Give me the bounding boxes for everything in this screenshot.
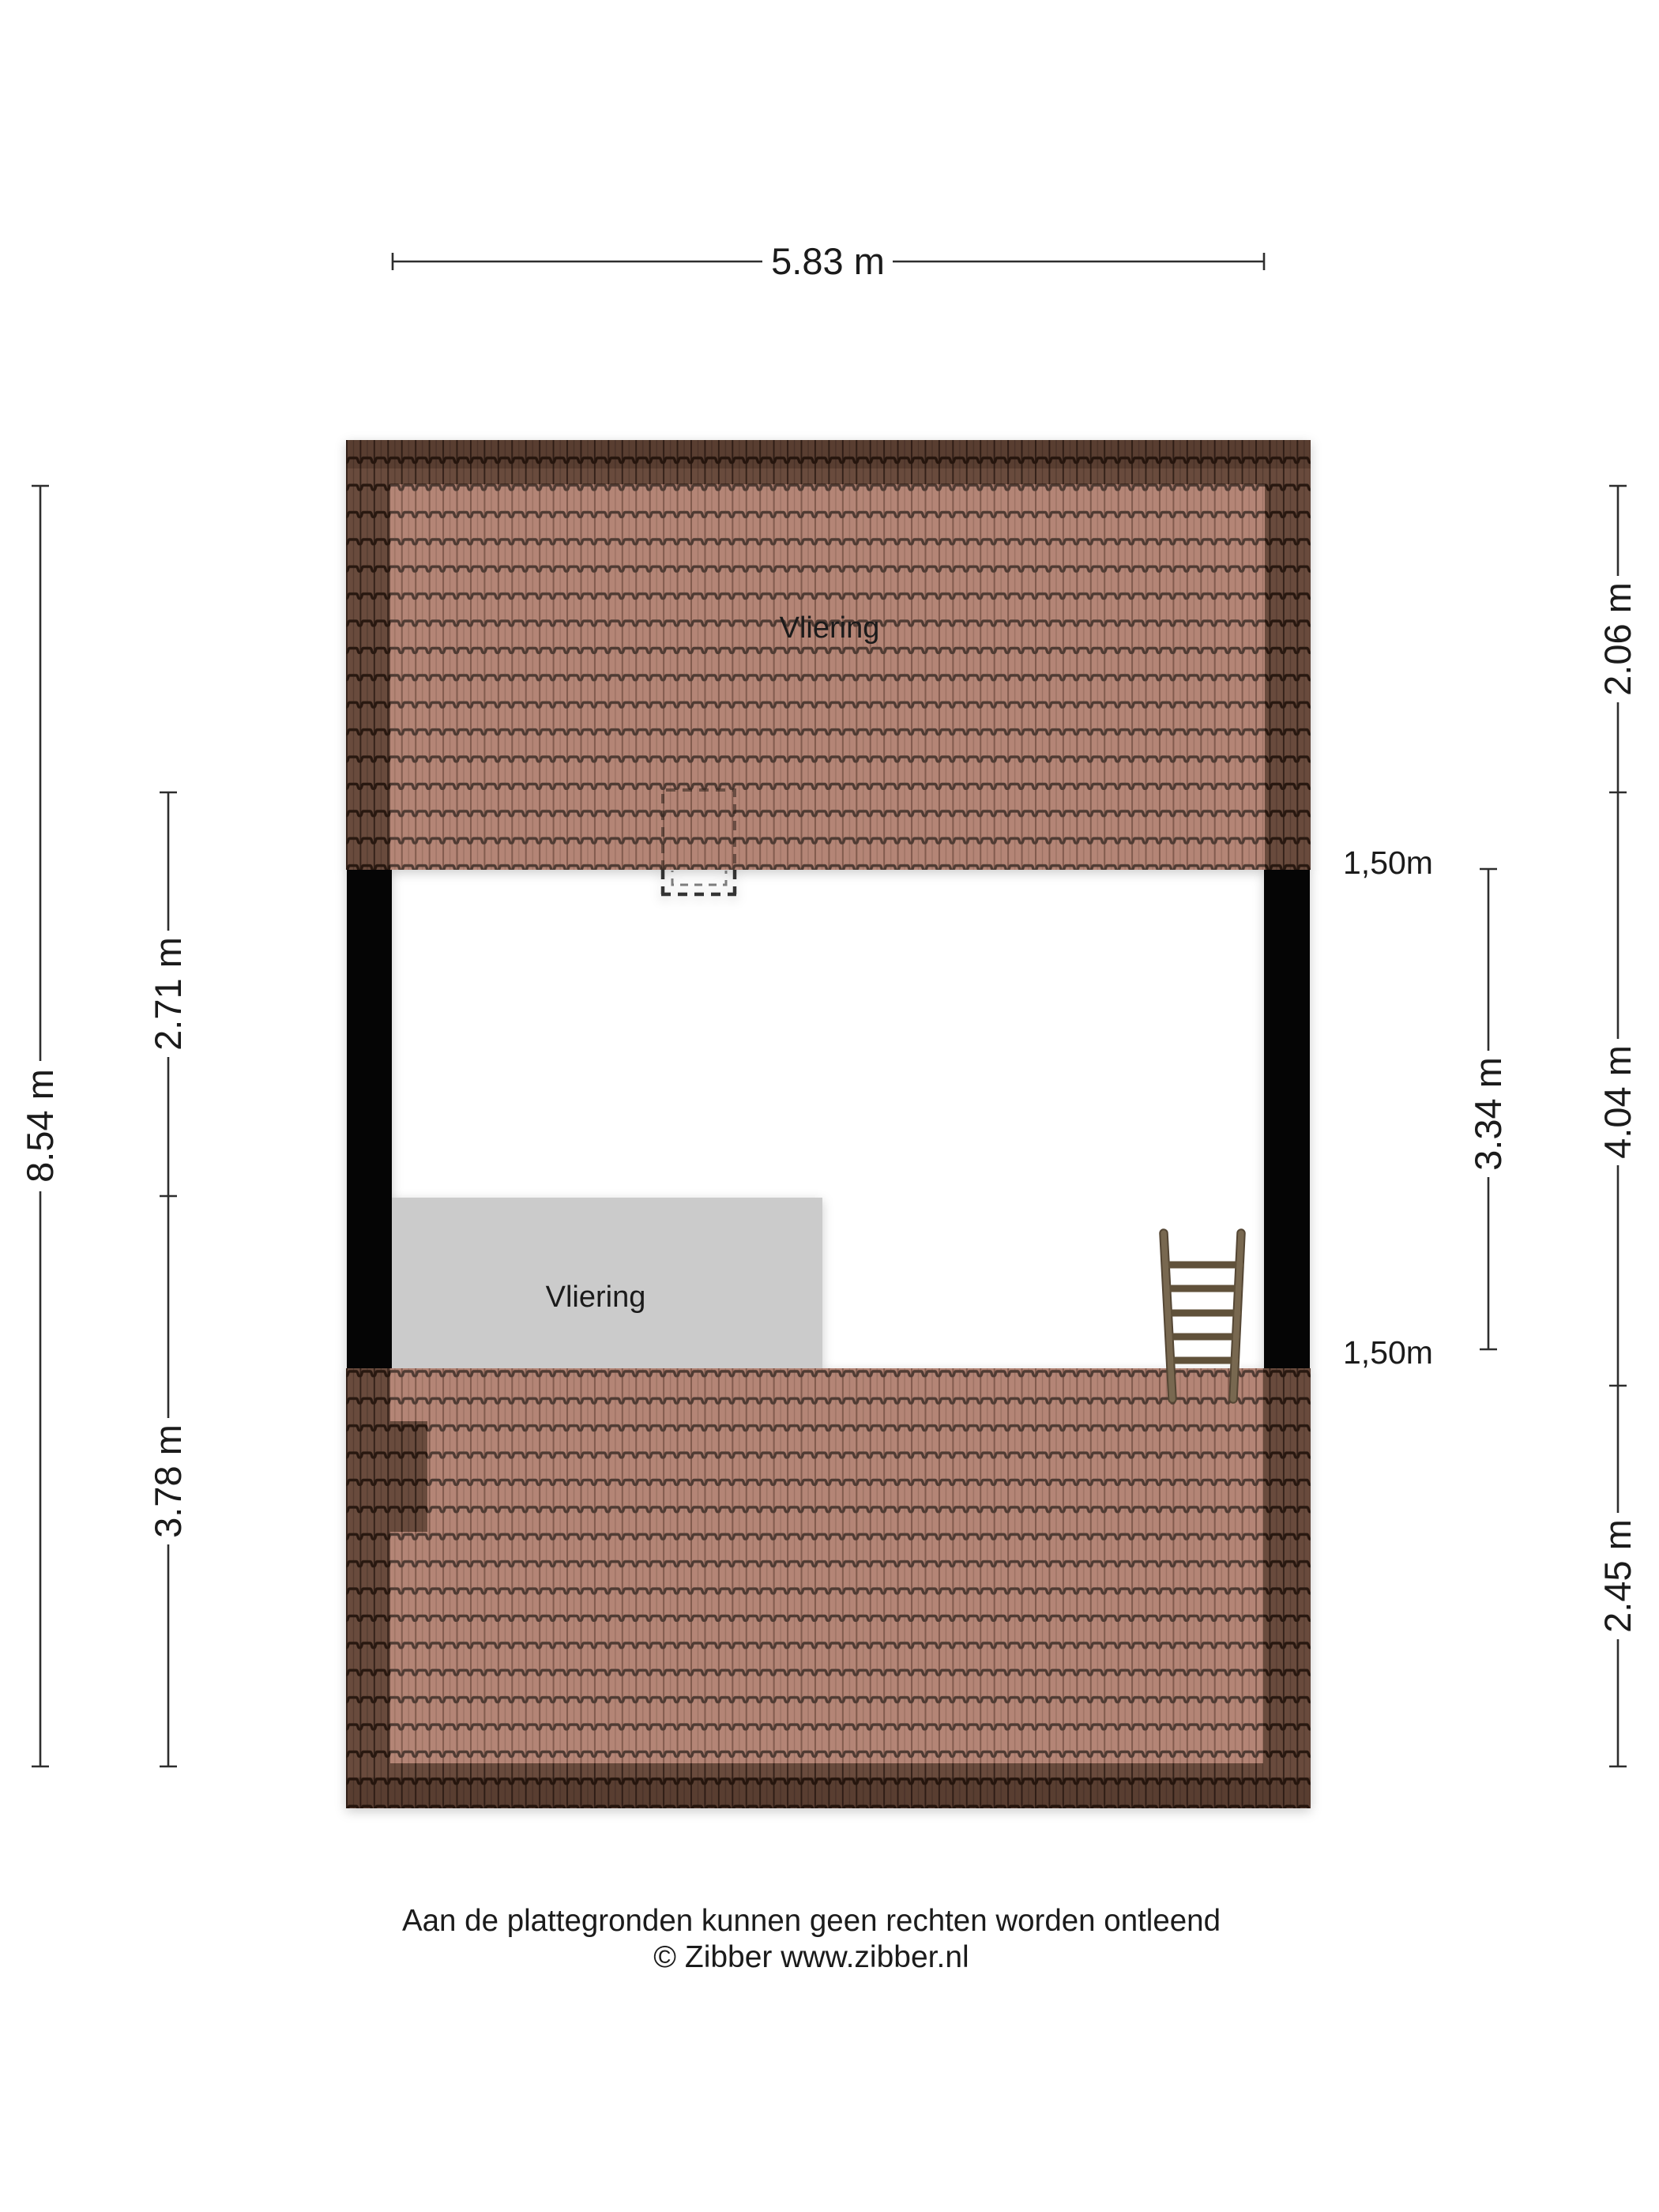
svg-text:Vliering: Vliering bbox=[780, 611, 880, 645]
svg-text:1,50m: 1,50m bbox=[1343, 845, 1433, 881]
svg-text:2.06 m: 2.06 m bbox=[1597, 582, 1638, 696]
svg-text:3.78 m: 3.78 m bbox=[147, 1424, 189, 1538]
svg-text:2.45 m: 2.45 m bbox=[1597, 1519, 1638, 1633]
svg-text:8.54 m: 8.54 m bbox=[19, 1069, 61, 1183]
svg-text:Aan de plattegronden kunnen ge: Aan de plattegronden kunnen geen rechten… bbox=[402, 1904, 1221, 1938]
svg-text:© Zibber www.zibber.nl: © Zibber www.zibber.nl bbox=[653, 1940, 969, 1974]
svg-text:4.04 m: 4.04 m bbox=[1597, 1045, 1638, 1159]
svg-text:1,50m: 1,50m bbox=[1343, 1334, 1433, 1371]
svg-text:2.71 m: 2.71 m bbox=[147, 937, 189, 1051]
svg-text:Vliering: Vliering bbox=[546, 1281, 646, 1314]
svg-text:5.83 m: 5.83 m bbox=[771, 240, 885, 282]
svg-text:3.34 m: 3.34 m bbox=[1467, 1057, 1509, 1171]
